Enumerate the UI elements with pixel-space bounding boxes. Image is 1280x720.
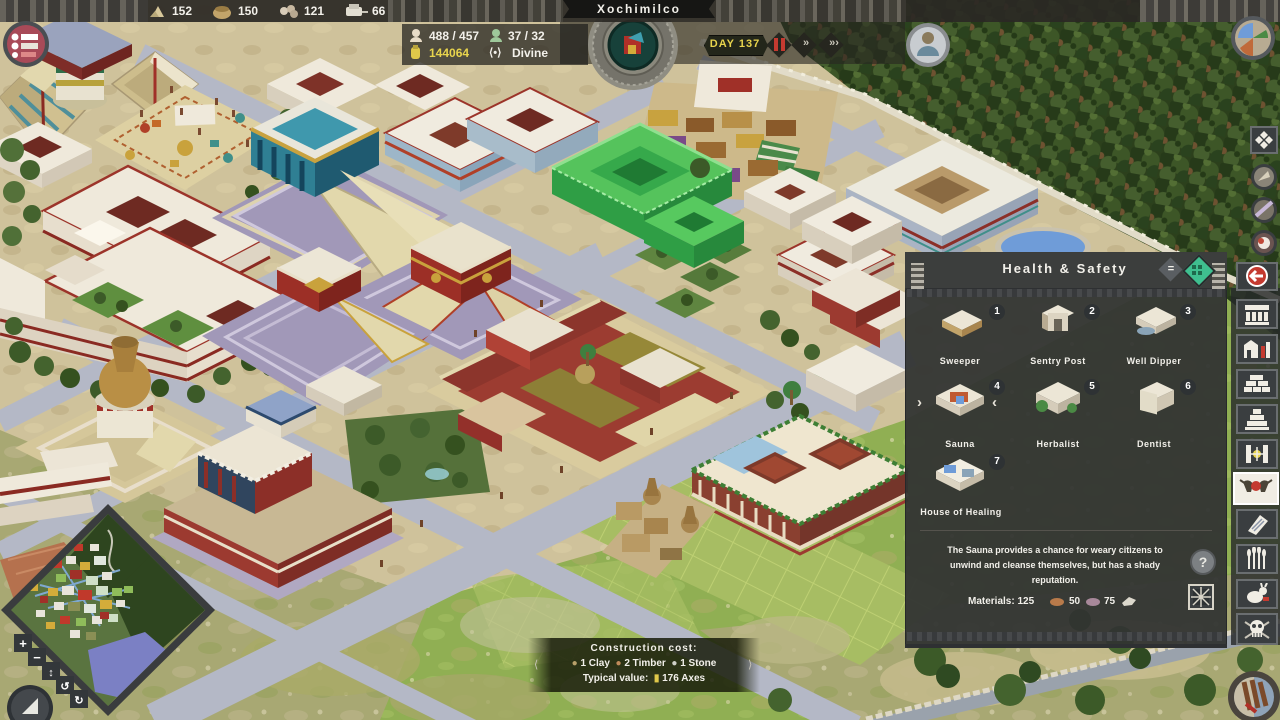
svg-text:↕: ↕: [48, 667, 54, 679]
svg-text:↻: ↻: [74, 695, 83, 707]
svg-text:↺: ↺: [60, 681, 69, 693]
svg-text:−: −: [33, 650, 41, 665]
svg-text:+: +: [19, 636, 27, 651]
